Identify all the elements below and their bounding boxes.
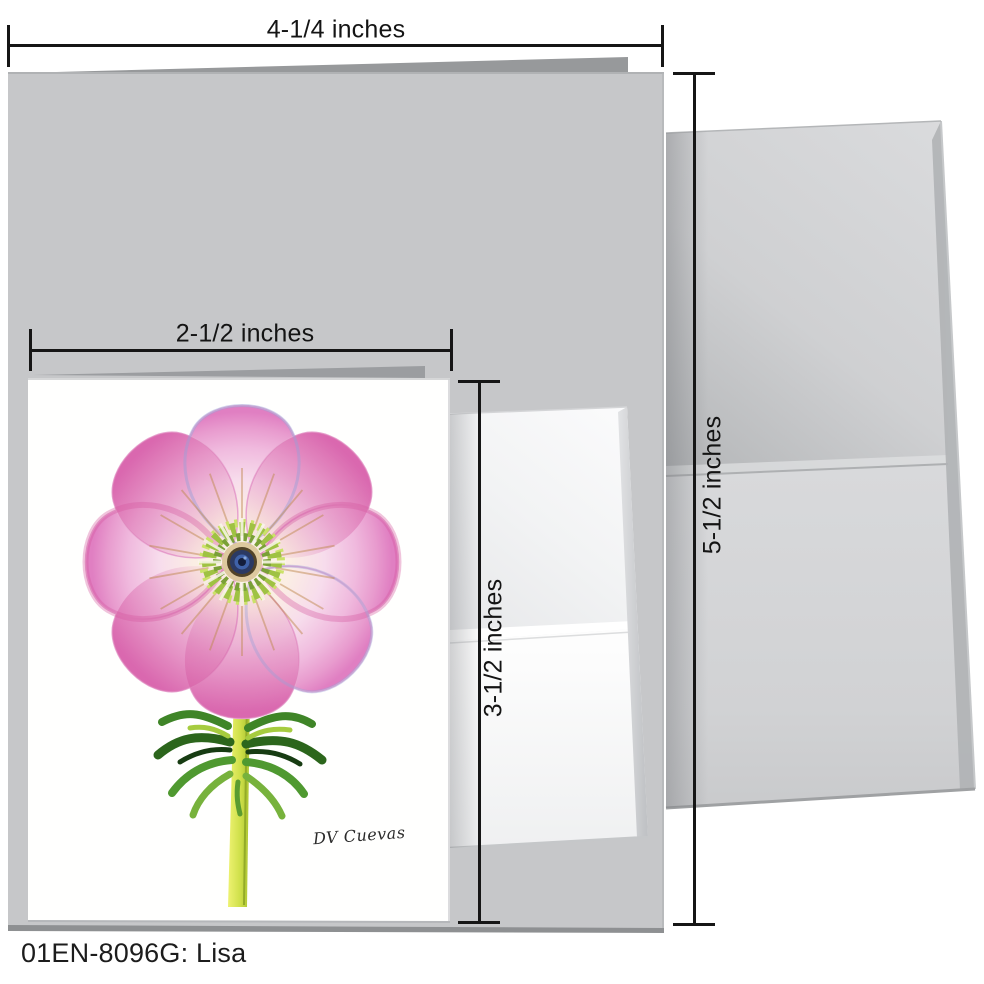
large-card-back-page [18, 57, 628, 73]
product-mockup-scene: 4-1/4 inches 2-1/2 inches 3-1/2 inches 5… [0, 0, 984, 984]
dimension-label-folded-width: 4-1/4 inches [267, 16, 406, 45]
scene-graphics [0, 0, 984, 984]
leaf [237, 782, 240, 814]
dimension-label-folded-height: 5-1/2 inches [699, 416, 728, 555]
dimension-tick-folded-width-left [7, 25, 10, 67]
dimension-tick-notecard-width-right [450, 329, 453, 371]
dimension-tick-folded-height-top [673, 72, 715, 75]
dimension-tick-folded-width-right [661, 25, 664, 67]
center-highlight [243, 556, 246, 559]
flower-center-disc [222, 542, 262, 582]
dimension-tick-notecard-height-bottom [458, 921, 500, 924]
small-card-bottom-edge [28, 921, 450, 922]
dimension-line-notecard-width [30, 349, 452, 352]
dimension-line-folded-height [693, 73, 696, 926]
dimension-tick-folded-height-bottom [673, 923, 715, 926]
dimension-tick-notecard-height-top [458, 380, 500, 383]
dimension-label-notecard-height: 3-1/2 inches [480, 579, 509, 718]
dimension-label-notecard-width: 2-1/2 inches [176, 320, 315, 349]
product-caption: 01EN-8096G: Lisa [21, 938, 246, 969]
dimension-tick-notecard-width-left [29, 329, 32, 371]
